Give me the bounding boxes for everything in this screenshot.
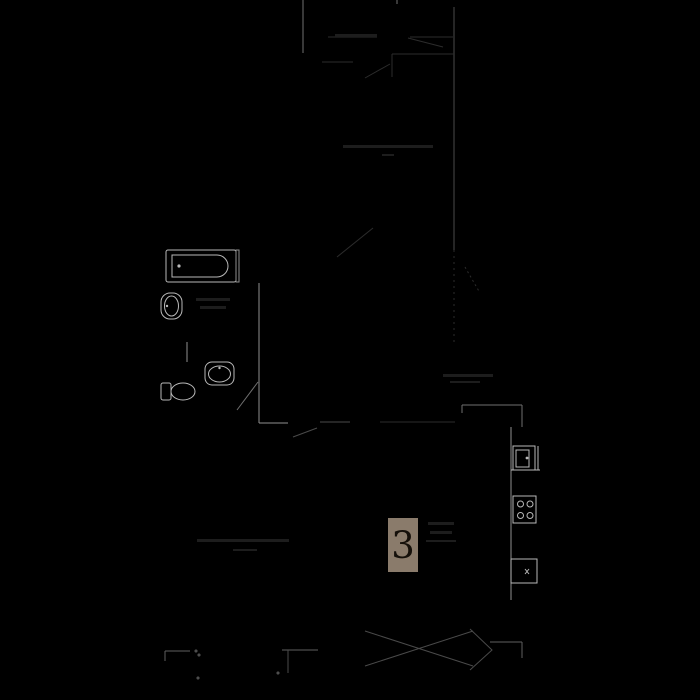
label-mark [196, 298, 230, 301]
door-swing-line [337, 228, 373, 257]
wall-segment [236, 250, 239, 282]
label-mark [197, 539, 289, 542]
unit-number: 3 [391, 527, 415, 564]
furniture-dot [197, 677, 199, 679]
room-label-marks [196, 34, 493, 551]
label-mark [233, 549, 257, 551]
label-mark [430, 531, 452, 534]
door-swing-line [465, 267, 480, 293]
furniture-dot [198, 654, 200, 656]
label-mark [450, 381, 480, 383]
furniture-dot [195, 650, 197, 652]
label-mark [428, 522, 454, 525]
appliance-box-icon [511, 559, 537, 583]
unit-number-badge: 3 [388, 518, 418, 572]
bathroom [161, 250, 350, 437]
label-mark [200, 306, 226, 309]
furniture-dot [277, 672, 279, 674]
door-swing-line [408, 38, 443, 47]
label-mark [443, 374, 493, 377]
label-mark [382, 154, 394, 156]
entrance-arrow-icon [365, 629, 492, 670]
floor-plan-canvas: 3 [0, 0, 700, 700]
label-mark [335, 34, 377, 37]
door-swing-line [237, 382, 258, 410]
top-walls [303, 0, 454, 345]
label-mark [343, 145, 433, 148]
toilet-icon [161, 383, 195, 400]
bathtub-icon [166, 250, 236, 282]
washbasin-icon [205, 362, 234, 385]
hall-walls [337, 228, 522, 427]
kitchen [511, 427, 540, 600]
cooktop-4-burner-icon [513, 496, 536, 523]
bottom-elements [165, 629, 522, 679]
floor-plan-drawing [0, 0, 700, 700]
small-washbasin-icon [161, 293, 182, 319]
door-swing-line [365, 64, 390, 78]
kitchen-sink-icon [511, 446, 540, 470]
door-swing-line [293, 428, 317, 437]
label-mark [426, 540, 456, 542]
